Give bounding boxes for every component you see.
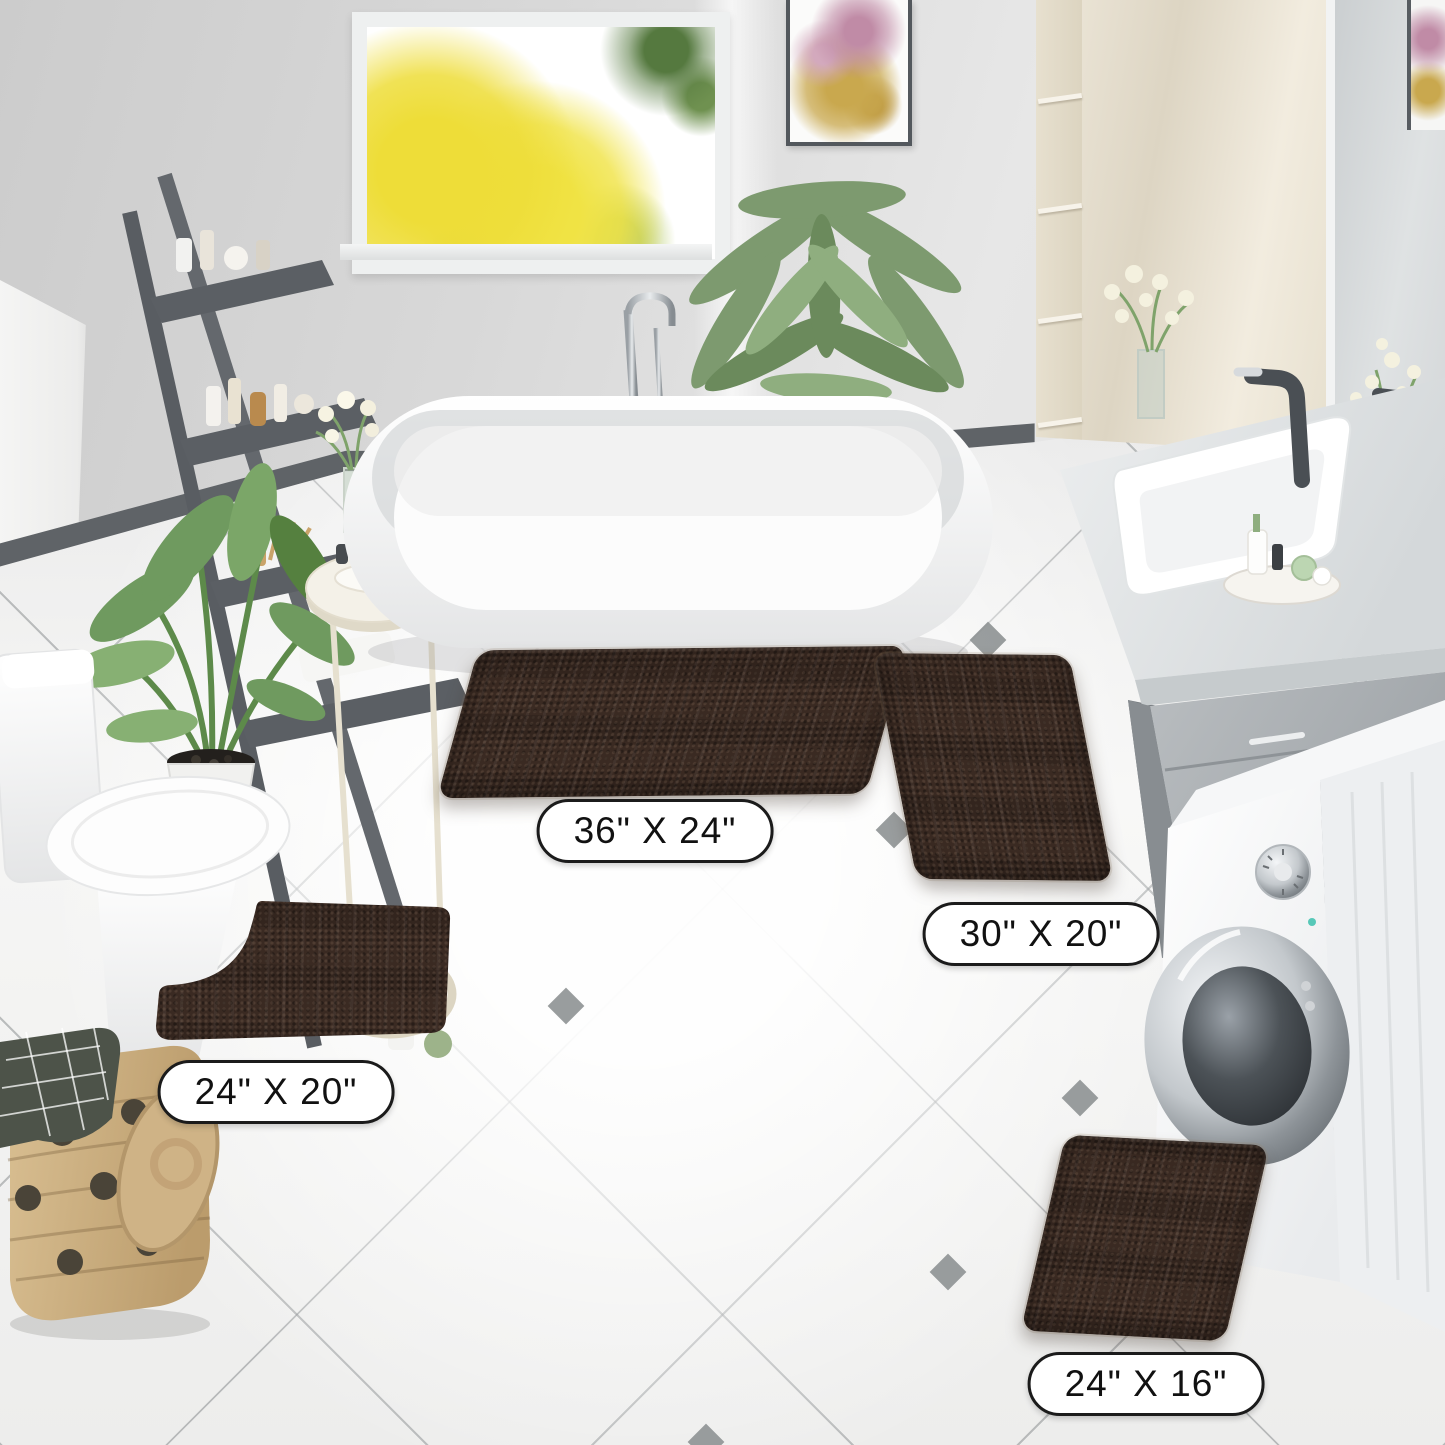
bath-rug-36x24: [437, 646, 907, 798]
size-label-24x20: 24" X 20": [158, 1060, 395, 1124]
size-label-24x16: 24" X 16": [1028, 1352, 1265, 1416]
bathroom-scene: 36" X 24" 30" X 20" 24" X 20" 24" X 16": [0, 0, 1445, 1445]
size-label-36x24: 36" X 24": [537, 799, 774, 863]
size-label-30x20: 30" X 20": [923, 902, 1160, 966]
